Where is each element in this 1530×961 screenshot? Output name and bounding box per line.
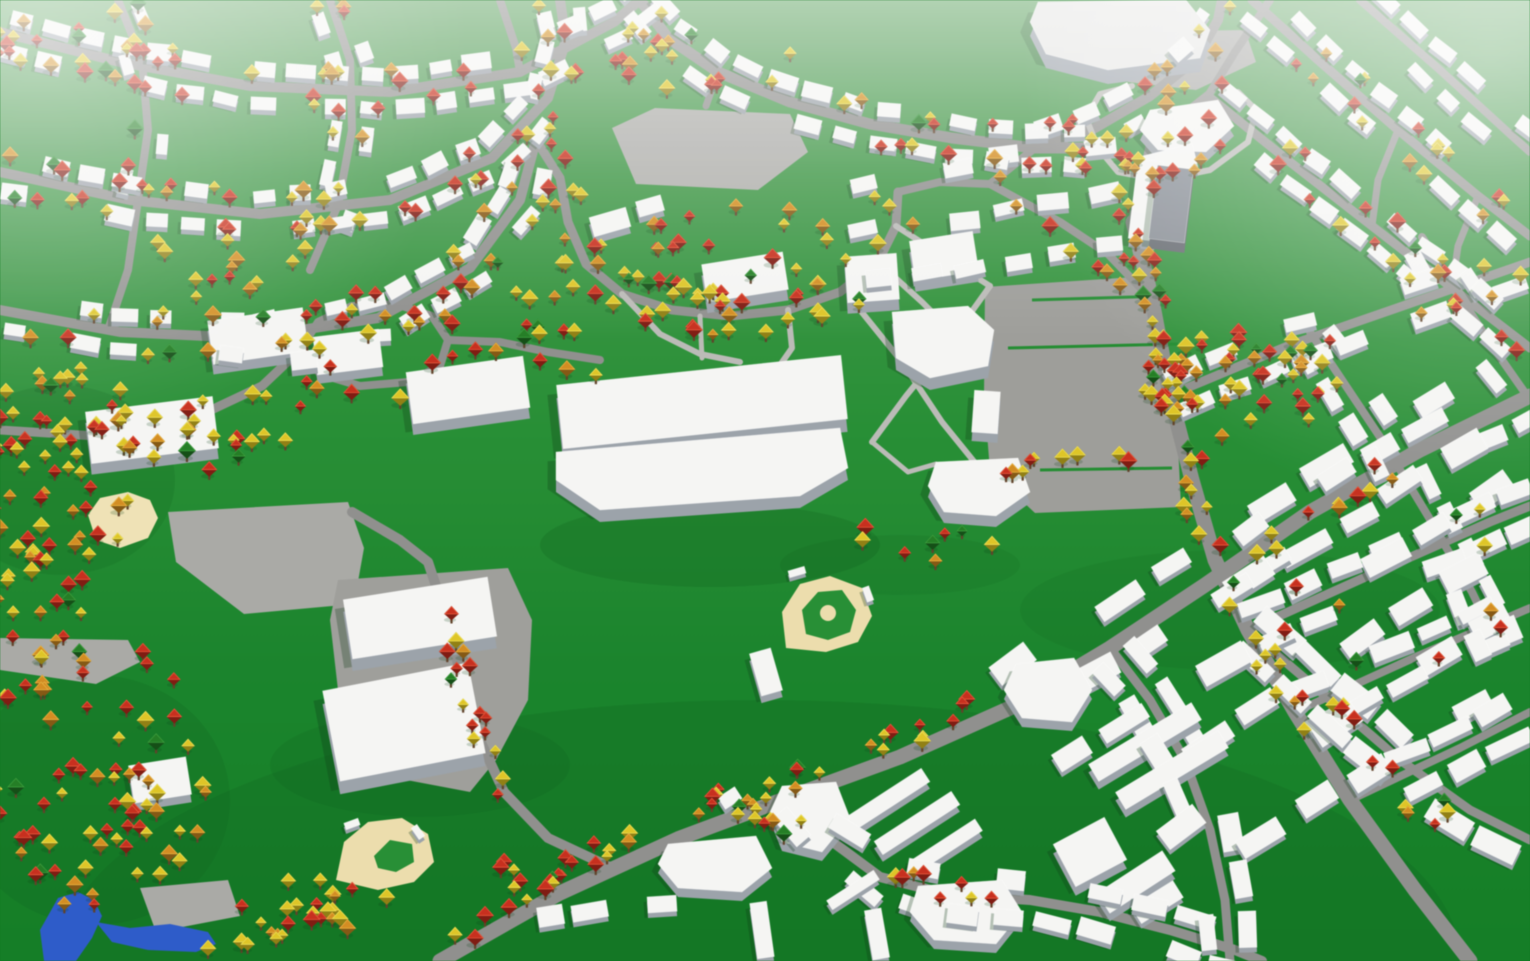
atmosphere-fog <box>0 0 1530 961</box>
city-3d-viewport[interactable]: Low-poly 3D aerial view of a town: white… <box>0 0 1530 961</box>
scene-svg <box>0 0 1530 961</box>
global-haze <box>0 0 1530 961</box>
